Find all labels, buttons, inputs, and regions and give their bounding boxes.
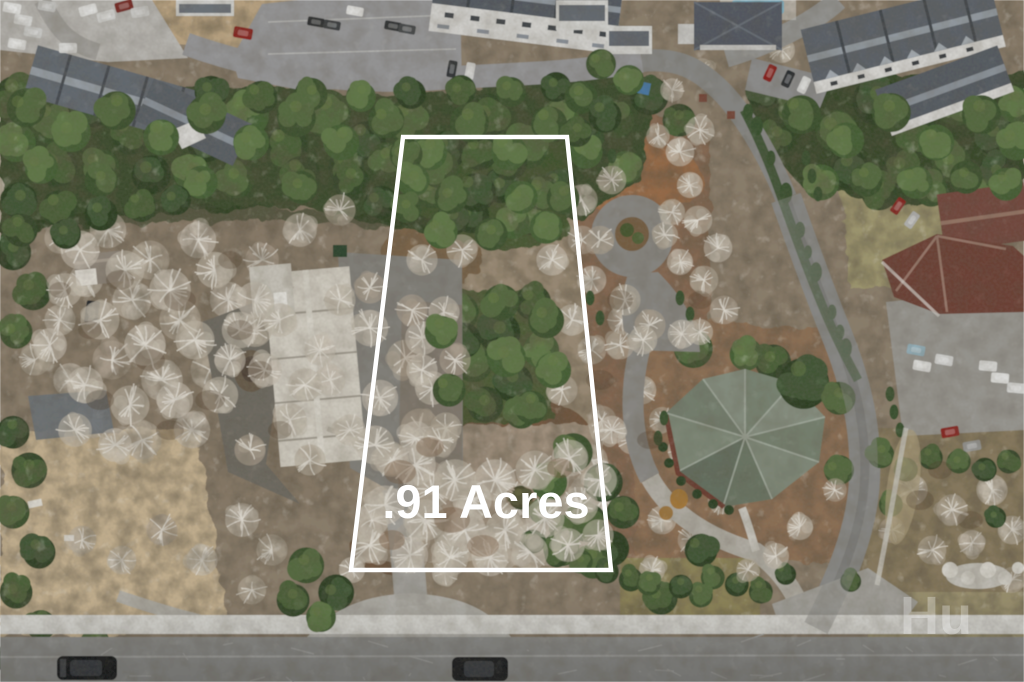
svg-text:Hu: Hu bbox=[900, 586, 972, 646]
svg-text:.91 Acres: .91 Acres bbox=[382, 475, 589, 528]
